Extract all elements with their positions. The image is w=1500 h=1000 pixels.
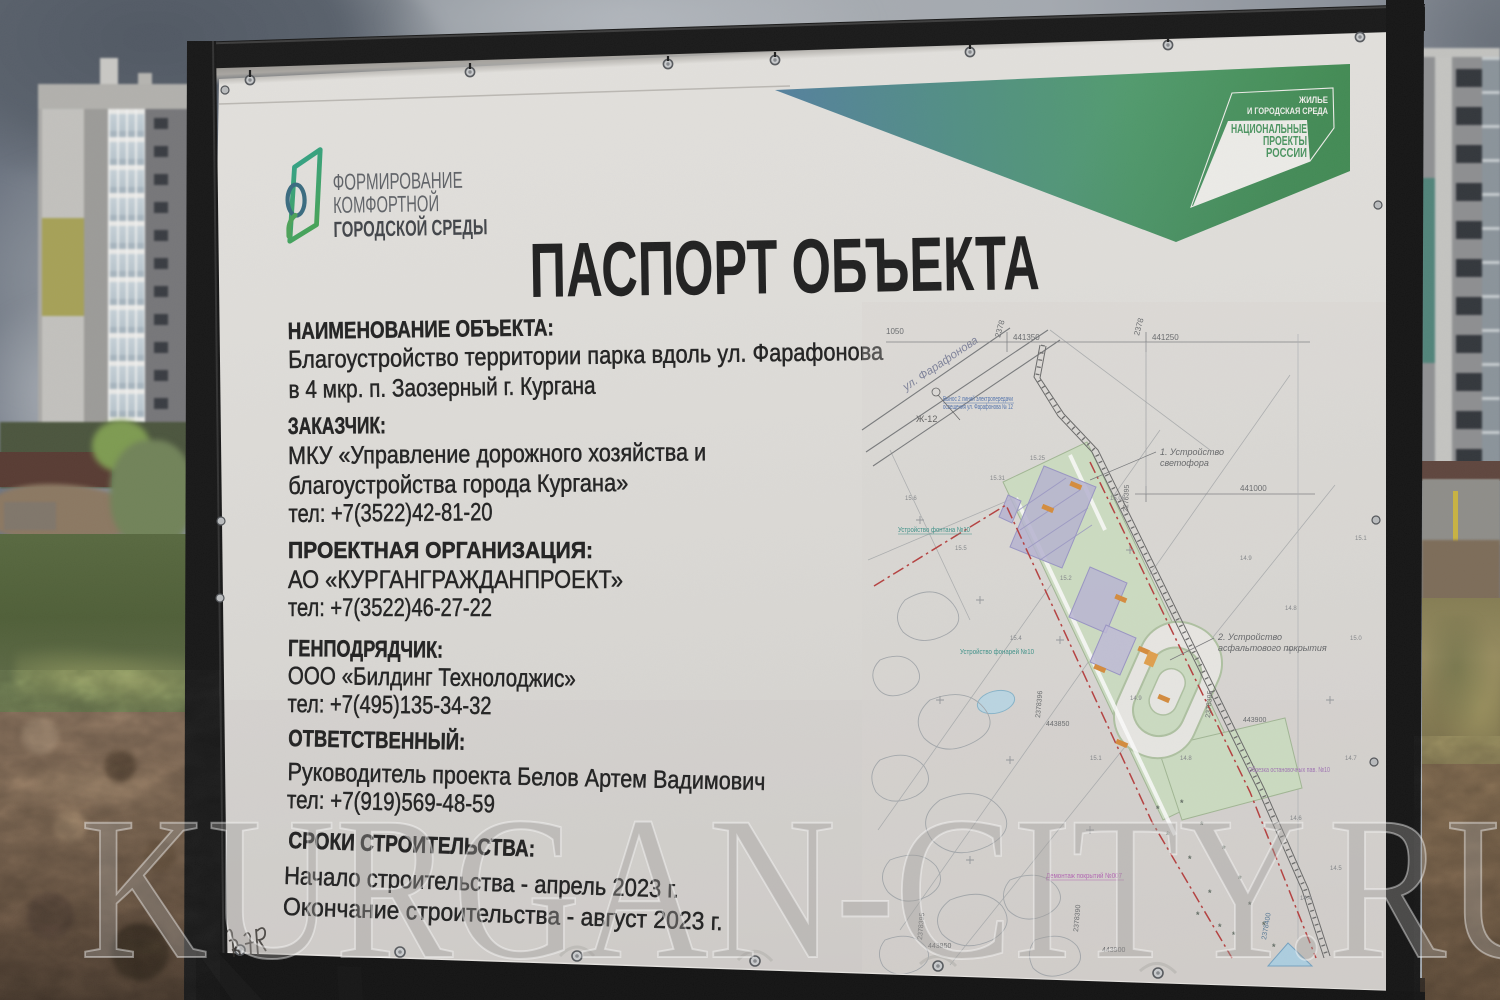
svg-text:KURGAN-CITY.RU: KURGAN-CITY.RU bbox=[80, 775, 1500, 1000]
